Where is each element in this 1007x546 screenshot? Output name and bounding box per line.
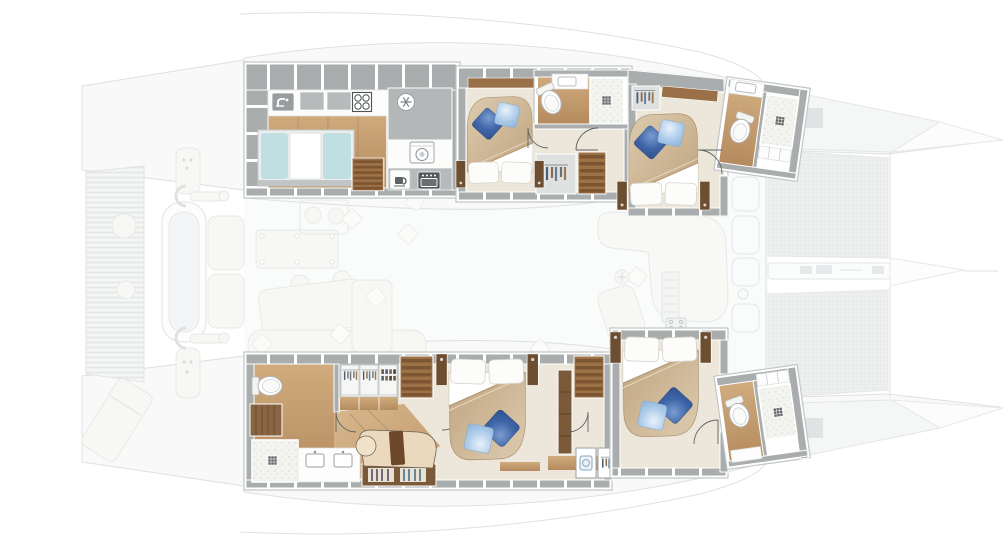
dinghy-cockpit <box>169 212 199 332</box>
galley <box>244 62 460 198</box>
ensuite-bathroom <box>714 365 810 470</box>
headboard-shelf <box>468 78 538 88</box>
hanging-clothes-icon <box>343 370 359 381</box>
bowsprit <box>768 258 998 286</box>
aft-slatted-platform <box>86 166 144 382</box>
guest-cabin-port-aft <box>456 66 632 202</box>
coffee-machine-icon <box>390 170 410 189</box>
sink-basin <box>327 92 351 110</box>
sofa-arm <box>356 436 376 456</box>
hanging-clothes-icon <box>635 91 655 105</box>
dresser <box>250 404 282 436</box>
ensuite-bathroom <box>534 70 628 129</box>
hanging-clothes-icon <box>544 165 568 181</box>
shower-drain-icon <box>602 96 611 105</box>
suite-steps <box>400 356 433 398</box>
sink <box>558 77 576 86</box>
closet-drawers <box>340 397 398 410</box>
hanging-clothes-icon <box>362 370 378 381</box>
refrigerator <box>388 88 452 140</box>
faucet-icon <box>272 93 294 111</box>
cockpit-deck-panel <box>208 216 244 270</box>
floor-plan-canvas <box>0 0 1007 546</box>
anchor-windlass <box>800 266 812 274</box>
snowflake-fridge-icon <box>398 94 415 111</box>
ensuite-bathroom <box>714 77 810 182</box>
anchor-windlass <box>816 265 832 274</box>
catamaran-floor-plan <box>0 0 1007 546</box>
stove-burners-icon <box>353 93 372 112</box>
cushion-cyan <box>323 133 351 179</box>
tall-wardrobe <box>558 370 572 454</box>
wardrobe <box>632 86 660 110</box>
oven-icon <box>418 172 440 189</box>
vanity-two-sinks <box>298 448 360 482</box>
sink <box>334 454 352 467</box>
walk-in-closet <box>340 364 398 410</box>
round-table <box>112 214 136 238</box>
cushion-white <box>290 133 321 179</box>
shower-drain-icon <box>268 456 277 465</box>
shower-drain-icon <box>773 407 783 417</box>
cushion-cyan <box>261 133 288 179</box>
mast-foot <box>615 270 629 284</box>
chaise-sofa <box>356 430 436 486</box>
companionway-ghost <box>662 272 679 322</box>
cabin-steps <box>578 152 606 194</box>
shower-drain-icon <box>775 116 785 126</box>
hull-steps <box>574 356 604 398</box>
throw-blanket <box>389 431 405 466</box>
mini-washer <box>580 456 592 470</box>
galley-cabinets <box>246 64 458 90</box>
dial <box>328 208 344 224</box>
bed-foot-platform <box>500 462 540 471</box>
toilet <box>252 377 282 396</box>
crew-berth <box>258 130 354 186</box>
cockpit-table <box>256 230 338 268</box>
round-stool <box>117 281 135 299</box>
sink-basin <box>300 92 324 110</box>
mini-fridge <box>305 207 321 223</box>
owner-suite <box>244 352 620 490</box>
galley-steps <box>352 158 384 191</box>
cockpit-deck-panel <box>208 274 244 328</box>
washing-machine-icon <box>410 142 434 163</box>
sink <box>306 454 324 467</box>
